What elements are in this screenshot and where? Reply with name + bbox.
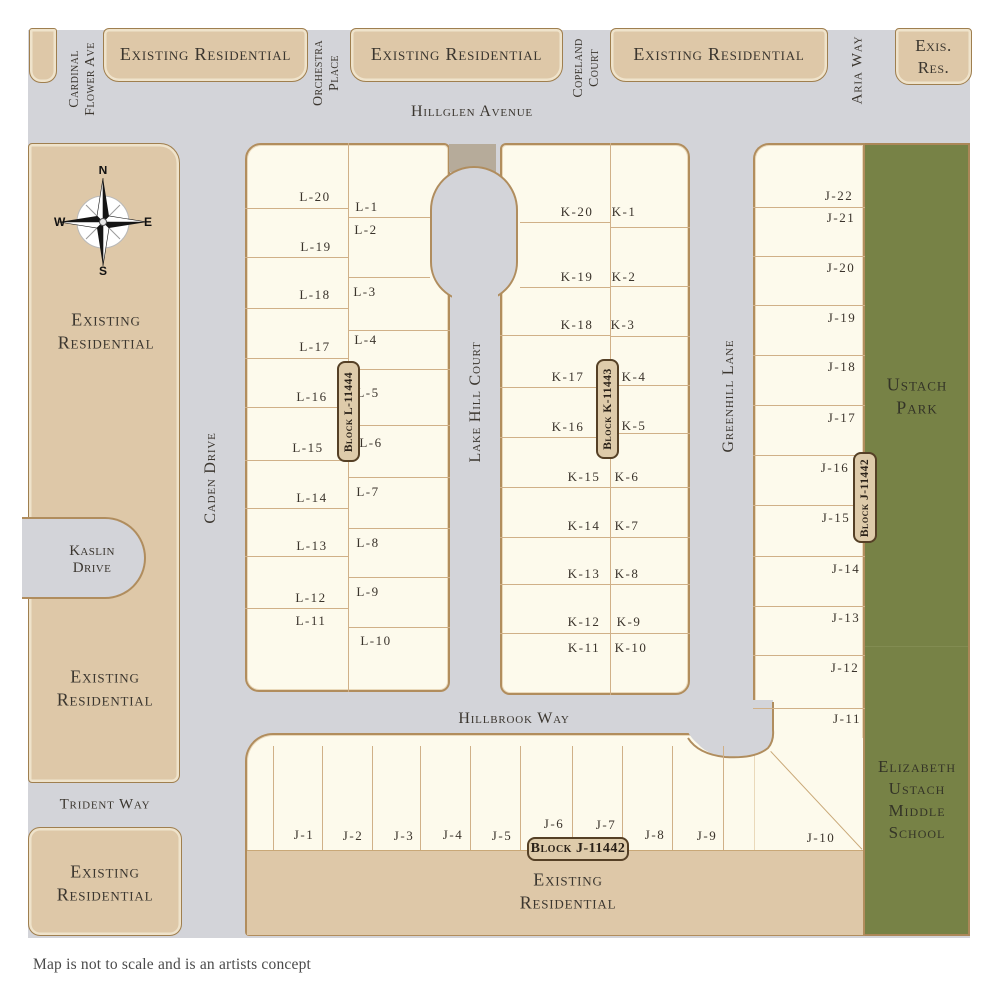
lot-label-l-19: L-19 — [300, 239, 331, 255]
street-label-lake-hill-court: Lake Hill Court — [467, 342, 485, 463]
block-k-badge: Block K-11443 — [596, 359, 619, 459]
lot-line — [245, 608, 348, 609]
lot-label-j-8: J-8 — [645, 827, 665, 843]
lot-line — [245, 556, 348, 557]
lot-label-j-1: J-1 — [294, 827, 314, 843]
block-k-parcel — [500, 143, 690, 695]
lot-line — [500, 387, 610, 388]
street-label-cardinal-flower-ave: CardinalFlower Ave — [67, 42, 99, 116]
lot-line — [322, 746, 323, 850]
lot-label-l-15: L-15 — [292, 440, 323, 456]
lot-line — [245, 208, 348, 209]
hillbrook-greenhill-junction — [660, 690, 800, 770]
lot-line — [245, 460, 348, 461]
lot-line — [348, 477, 450, 478]
lot-line — [610, 487, 690, 488]
lot-label-l-16: L-16 — [296, 389, 327, 405]
lot-label-l-1: L-1 — [355, 199, 378, 215]
lot-line — [245, 308, 348, 309]
lot-label-l-18: L-18 — [299, 287, 330, 303]
lot-line — [470, 746, 471, 850]
park-school-divider — [865, 646, 968, 647]
lot-label-j-14: J-14 — [832, 561, 860, 577]
lot-line — [753, 405, 865, 406]
lot-line — [273, 746, 274, 850]
lot-line — [520, 222, 610, 223]
lot-label-l-11: L-11 — [296, 613, 327, 629]
lot-label-l-3: L-3 — [353, 284, 376, 300]
existing-residential-label: Existing Residential — [633, 43, 804, 66]
lot-label-j-3: J-3 — [394, 828, 414, 844]
existing-residential-label: ExistingResidential — [57, 861, 154, 908]
existing-residential-box-small — [29, 28, 57, 83]
existing-residential-box-1: Existing Residential — [103, 28, 308, 82]
svg-text:N: N — [99, 166, 108, 177]
subdivision-map: Existing Residential Existing Residentia… — [0, 0, 1000, 1000]
lot-line — [572, 746, 573, 850]
lot-label-j-11: J-11 — [833, 711, 861, 727]
lot-line — [753, 256, 865, 257]
lot-label-j-17: J-17 — [828, 410, 856, 426]
lot-line — [622, 746, 623, 850]
lot-label-k-8: K-8 — [615, 566, 640, 582]
lot-label-l-13: L-13 — [296, 538, 327, 554]
existing-residential-label: ExistingResidential — [520, 869, 617, 916]
lot-label-j-6: J-6 — [544, 816, 564, 832]
lot-line — [610, 584, 690, 585]
map-disclaimer: Map is not to scale and is an artists co… — [33, 956, 311, 974]
lot-label-j-18: J-18 — [828, 359, 856, 375]
lot-line — [520, 746, 521, 850]
lot-line — [348, 528, 450, 529]
exis-res-label: Exis.Res. — [915, 35, 951, 78]
lot-line — [753, 708, 865, 709]
street-label-trident-way: Trident Way — [60, 797, 151, 814]
lot-line — [753, 207, 865, 208]
existing-residential-box-2: Existing Residential — [350, 28, 563, 82]
lot-label-k-3: K-3 — [611, 317, 636, 333]
compass-rose-icon: N S W E — [53, 166, 153, 276]
street-label-orchestra-place: OrchestraPlace — [311, 40, 343, 106]
lot-label-k-9: K-9 — [617, 614, 642, 630]
street-label-copeland-court: CopelandCourt — [571, 38, 603, 97]
lot-line — [348, 217, 430, 218]
lot-label-j-12: J-12 — [831, 660, 859, 676]
lot-line — [348, 330, 450, 331]
block-l-badge: Block L-11444 — [337, 361, 360, 462]
lot-label-l-14: L-14 — [296, 490, 327, 506]
existing-residential-label: Existing Residential — [120, 43, 291, 66]
road-patch — [452, 268, 498, 308]
lot-label-k-6: K-6 — [615, 469, 640, 485]
lot-label-k-13: K-13 — [568, 566, 601, 582]
lot-line — [245, 508, 348, 509]
lot-line — [610, 336, 690, 337]
existing-residential-label: Existing Residential — [371, 43, 542, 66]
existing-residential-label: ExistingResidential — [58, 309, 155, 356]
lot-line — [348, 425, 450, 426]
lot-label-l-2: L-2 — [354, 222, 377, 238]
lot-line — [610, 385, 690, 386]
lot-label-k-11: K-11 — [568, 640, 600, 656]
lot-line — [610, 537, 690, 538]
lot-label-k-20: K-20 — [561, 204, 594, 220]
lot-label-l-4: L-4 — [354, 332, 377, 348]
lot-line — [348, 277, 430, 278]
lot-label-k-7: K-7 — [615, 518, 640, 534]
lot-line — [672, 746, 673, 850]
lot-line — [610, 227, 690, 228]
lot-label-k-4: K-4 — [622, 369, 647, 385]
lot-line — [500, 584, 610, 585]
svg-text:W: W — [54, 215, 66, 229]
lot-label-k-18: K-18 — [561, 317, 594, 333]
elizabeth-ustach-middle-school-label: ElizabethUstach MiddleSchool — [878, 756, 956, 844]
lot-label-l-7: L-7 — [356, 484, 379, 500]
lot-line — [610, 286, 690, 287]
lot-label-j-19: J-19 — [828, 310, 856, 326]
lot-line — [753, 455, 865, 456]
lot-label-k-1: K-1 — [612, 204, 637, 220]
lot-line — [245, 257, 348, 258]
lot-label-k-5: K-5 — [622, 418, 647, 434]
lot-label-k-19: K-19 — [561, 269, 594, 285]
lot-label-l-6: L-6 — [359, 435, 382, 451]
lot-label-k-12: K-12 — [568, 614, 601, 630]
lot-label-k-17: K-17 — [552, 369, 585, 385]
lot-label-l-8: L-8 — [356, 535, 379, 551]
lot-label-j-7: J-7 — [596, 817, 616, 833]
block-j-badge-vertical: Block J-11442 — [853, 452, 877, 543]
lot-label-j-5: J-5 — [492, 828, 512, 844]
lot-line — [348, 369, 450, 370]
lot-label-k-10: K-10 — [615, 640, 648, 656]
street-label-hillbrook-way: Hillbrook Way — [458, 710, 569, 728]
lot-line — [753, 606, 865, 607]
lot-line — [348, 627, 450, 628]
lot-label-l-17: L-17 — [299, 339, 330, 355]
lot-line — [245, 358, 348, 359]
lot-label-l-9: L-9 — [356, 584, 379, 600]
lot-line — [500, 437, 610, 438]
lot-label-j-2: J-2 — [343, 828, 363, 844]
lot-line — [500, 633, 610, 634]
lot-line — [500, 487, 610, 488]
lot-label-l-20: L-20 — [299, 189, 330, 205]
lot-line — [348, 577, 450, 578]
existing-residential-box-4: Exis.Res. — [895, 28, 972, 85]
lot-line — [520, 287, 610, 288]
lot-line — [245, 407, 348, 408]
lot-line — [753, 305, 865, 306]
lot-label-j-10: J-10 — [807, 830, 835, 846]
lot-line — [500, 537, 610, 538]
lot-label-k-2: K-2 — [612, 269, 637, 285]
lot-label-j-21: J-21 — [827, 210, 855, 226]
lot-line — [420, 746, 421, 850]
lot-label-k-16: K-16 — [552, 419, 585, 435]
street-label-greenhill-lane: Greenhill Lane — [720, 340, 738, 453]
svg-text:S: S — [99, 264, 107, 276]
lot-label-j-16: J-16 — [821, 460, 849, 476]
lot-label-l-10: L-10 — [360, 633, 391, 649]
street-label-hillglen-avenue: Hillglen Avenue — [411, 103, 533, 121]
block-j-badge-horizontal: Block J-11442 — [527, 837, 629, 861]
lot-line — [753, 655, 865, 656]
lot-line — [372, 746, 373, 850]
lot-line — [753, 355, 865, 356]
lot-label-j-15: J-15 — [822, 510, 850, 526]
street-label-caden-drive: Caden Drive — [202, 432, 220, 523]
lot-label-k-15: K-15 — [568, 469, 601, 485]
lot-label-j-20: J-20 — [827, 260, 855, 276]
street-label-kaslin-drive: KaslinDrive — [69, 543, 115, 578]
lot-line — [500, 335, 610, 336]
lot-label-k-14: K-14 — [568, 518, 601, 534]
lot-line — [753, 556, 865, 557]
ustach-park-label: UstachPark — [887, 374, 948, 421]
lot-label-j-4: J-4 — [443, 827, 463, 843]
existing-residential-label: ExistingResidential — [57, 666, 154, 713]
lot-label-j-22: J-22 — [825, 188, 853, 204]
lot-label-j-9: J-9 — [697, 828, 717, 844]
lot-label-l-12: L-12 — [295, 590, 326, 606]
lot-label-j-13: J-13 — [832, 610, 860, 626]
existing-residential-box-3: Existing Residential — [610, 28, 828, 82]
lot-line — [610, 633, 690, 634]
street-label-aria-way: Aria Way — [850, 36, 867, 105]
lot-line — [753, 505, 865, 506]
lot-line — [723, 746, 724, 850]
svg-text:E: E — [144, 215, 152, 229]
